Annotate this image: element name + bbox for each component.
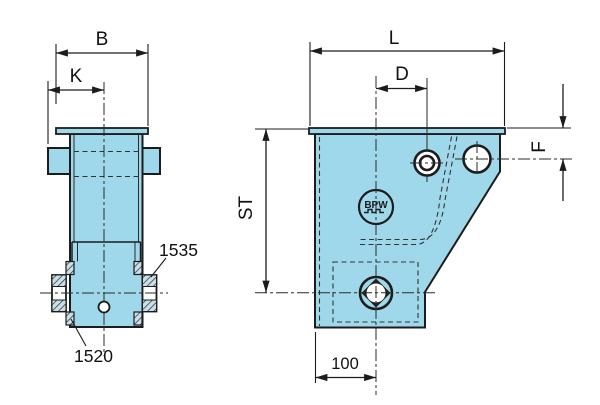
dim-label-st: ST [236,195,257,220]
dim-label-b: B [96,29,109,50]
dimension-st: ST [236,129,309,293]
front-view: B K 1535 1520 [40,29,198,366]
dim-label-k: K [70,66,83,87]
dimension-100: 100 [316,332,377,383]
dimension-d: D [376,64,427,89]
side-view: BPW L D ST [236,28,572,395]
callout-1535: 1535 [151,240,198,277]
side-view-top-flange [309,128,505,134]
dim-label-f: F [529,141,550,153]
dim-label-l: L [389,28,400,49]
hanger-bracket-drawing: B K 1535 1520 [0,0,600,405]
grease-hole [99,302,110,313]
technical-drawing-page: B K 1535 1520 [0,0,600,405]
callout-1535-label: 1535 [159,240,198,260]
dim-label-100: 100 [331,355,359,373]
dimension-f: F [507,84,571,201]
dim-label-d: D [395,64,409,85]
callout-1520-label: 1520 [74,346,113,366]
